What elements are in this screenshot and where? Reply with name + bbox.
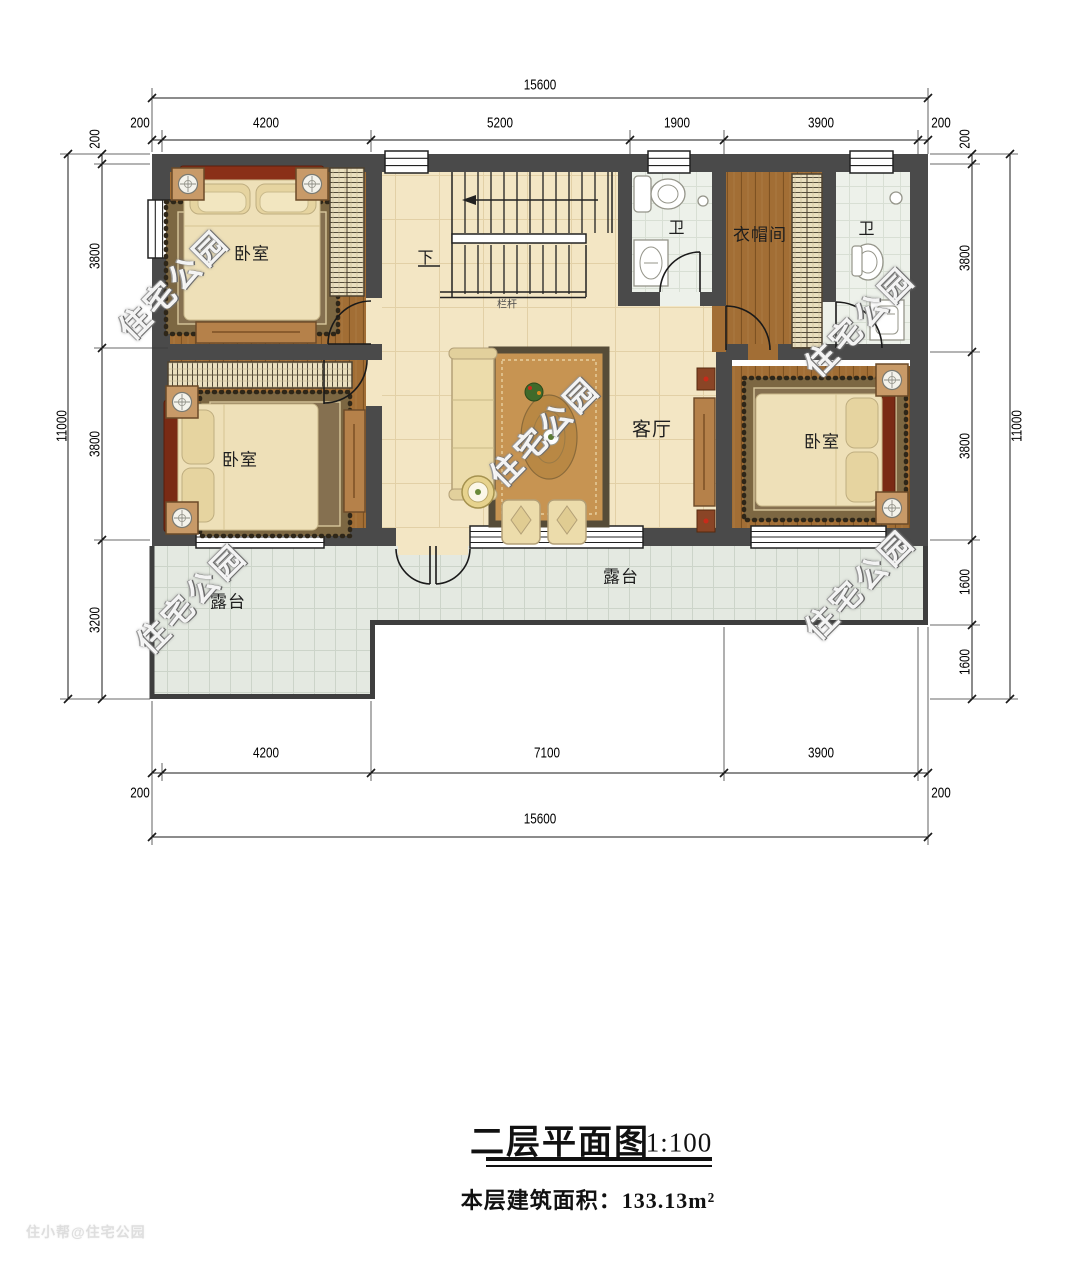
dim-right-seg-2: 3800 — [957, 433, 974, 459]
dim-left-seg-3: 3200 — [87, 607, 104, 633]
dim-left-seg-1: 3800 — [87, 243, 104, 269]
nightstand — [876, 364, 908, 396]
room-label-bedroom-bottom-left: 卧室 — [222, 446, 258, 471]
dim-left-seg-0: 200 — [87, 129, 104, 149]
room-label-bath-right: 卫 — [858, 215, 875, 239]
dim-top-seg-3: 1900 — [664, 115, 690, 132]
pillow — [846, 398, 878, 448]
room-label-terrace-right: 露台 — [603, 563, 639, 588]
dim-right-seg-1: 3800 — [957, 245, 974, 271]
dim-top-seg-5: 200 — [931, 115, 951, 132]
dim-left-seg-2: 3800 — [87, 431, 104, 457]
title-underline-thin — [486, 1165, 712, 1167]
room-label-living: 客厅 — [632, 415, 672, 442]
dim-bottom-wall-right: 200 — [931, 785, 951, 802]
dim-right-total: 11000 — [1009, 410, 1026, 442]
dim-top-seg-0: 200 — [130, 115, 150, 132]
floor-plan-page: 15600 200 4200 5200 1900 3900 200 4200 7… — [0, 0, 1080, 1271]
dim-bottom-seg-1: 7100 — [534, 745, 560, 762]
room-label-bedroom-top-left: 卧室 — [234, 240, 270, 265]
stairs-down-label: 下 — [417, 244, 434, 268]
dim-bottom-wall-left: 200 — [130, 785, 150, 802]
dim-bottom-seg-2: 3900 — [808, 745, 834, 762]
dim-top-seg-1: 4200 — [253, 115, 279, 132]
dim-bottom-seg-0: 4200 — [253, 745, 279, 762]
floor-area-text: 本层建筑面积：133.13m² — [461, 1183, 715, 1215]
dim-right-seg-0: 200 — [957, 129, 974, 149]
dim-top-seg-2: 5200 — [487, 115, 513, 132]
pillow — [846, 452, 878, 502]
shower-mixer — [698, 196, 708, 206]
nightstand — [172, 168, 204, 200]
dim-top-seg-4: 3900 — [808, 115, 834, 132]
furniture-bedroom-bottom-left — [164, 362, 365, 536]
title-underline-thick — [486, 1157, 712, 1161]
room-label-cloakroom: 衣帽间 — [733, 221, 787, 246]
dim-top-total: 15600 — [524, 77, 557, 94]
railing-label: 栏杆 — [497, 296, 517, 311]
nightstand — [296, 168, 328, 200]
toilet-tank — [634, 176, 651, 212]
furniture-cloakroom — [792, 174, 822, 348]
toilet-tank — [852, 246, 862, 276]
nightstand — [166, 502, 198, 534]
dim-bottom-total: 15600 — [524, 811, 557, 828]
dim-right-seg-3: 1600 — [957, 569, 974, 595]
shower-mixer — [890, 192, 902, 204]
room-label-bath-left: 卫 — [668, 214, 685, 238]
room-label-bedroom-right: 卧室 — [804, 428, 840, 453]
nightstand — [166, 386, 198, 418]
watermark-corner: 住小帮@住宅公园 — [26, 1222, 146, 1242]
dim-right-seg-4: 1600 — [957, 649, 974, 675]
dim-left-total: 11000 — [54, 410, 71, 442]
drawing-scale: 1:100 — [646, 1128, 713, 1159]
